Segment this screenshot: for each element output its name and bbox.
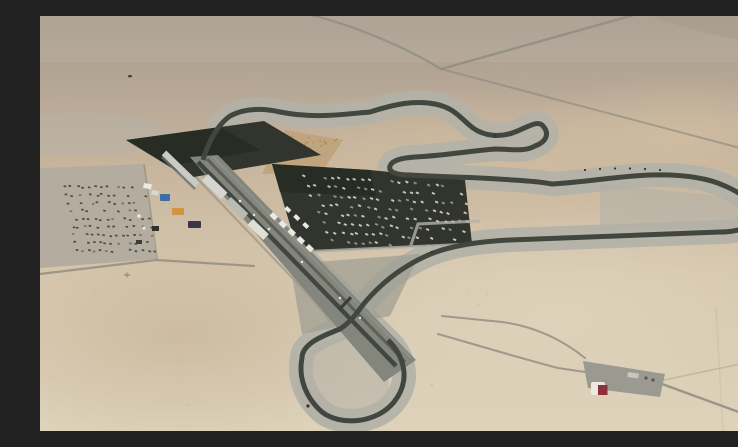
lot-vehicle <box>137 214 141 218</box>
dark-vehicle <box>152 226 159 231</box>
lot-vehicle <box>142 226 145 229</box>
aerial-photo-desert-race-circuit <box>40 16 738 431</box>
gatehouse-red-roof <box>598 385 608 395</box>
dark-truck <box>188 221 201 228</box>
bird-speck <box>128 75 132 77</box>
blue-truck <box>160 194 170 201</box>
facility-detail <box>651 378 654 381</box>
orange-truck <box>172 208 184 215</box>
facility-detail <box>644 376 647 379</box>
horizon-haze <box>40 16 738 62</box>
photo-canvas <box>40 16 738 431</box>
dark-vehicle <box>136 240 142 244</box>
